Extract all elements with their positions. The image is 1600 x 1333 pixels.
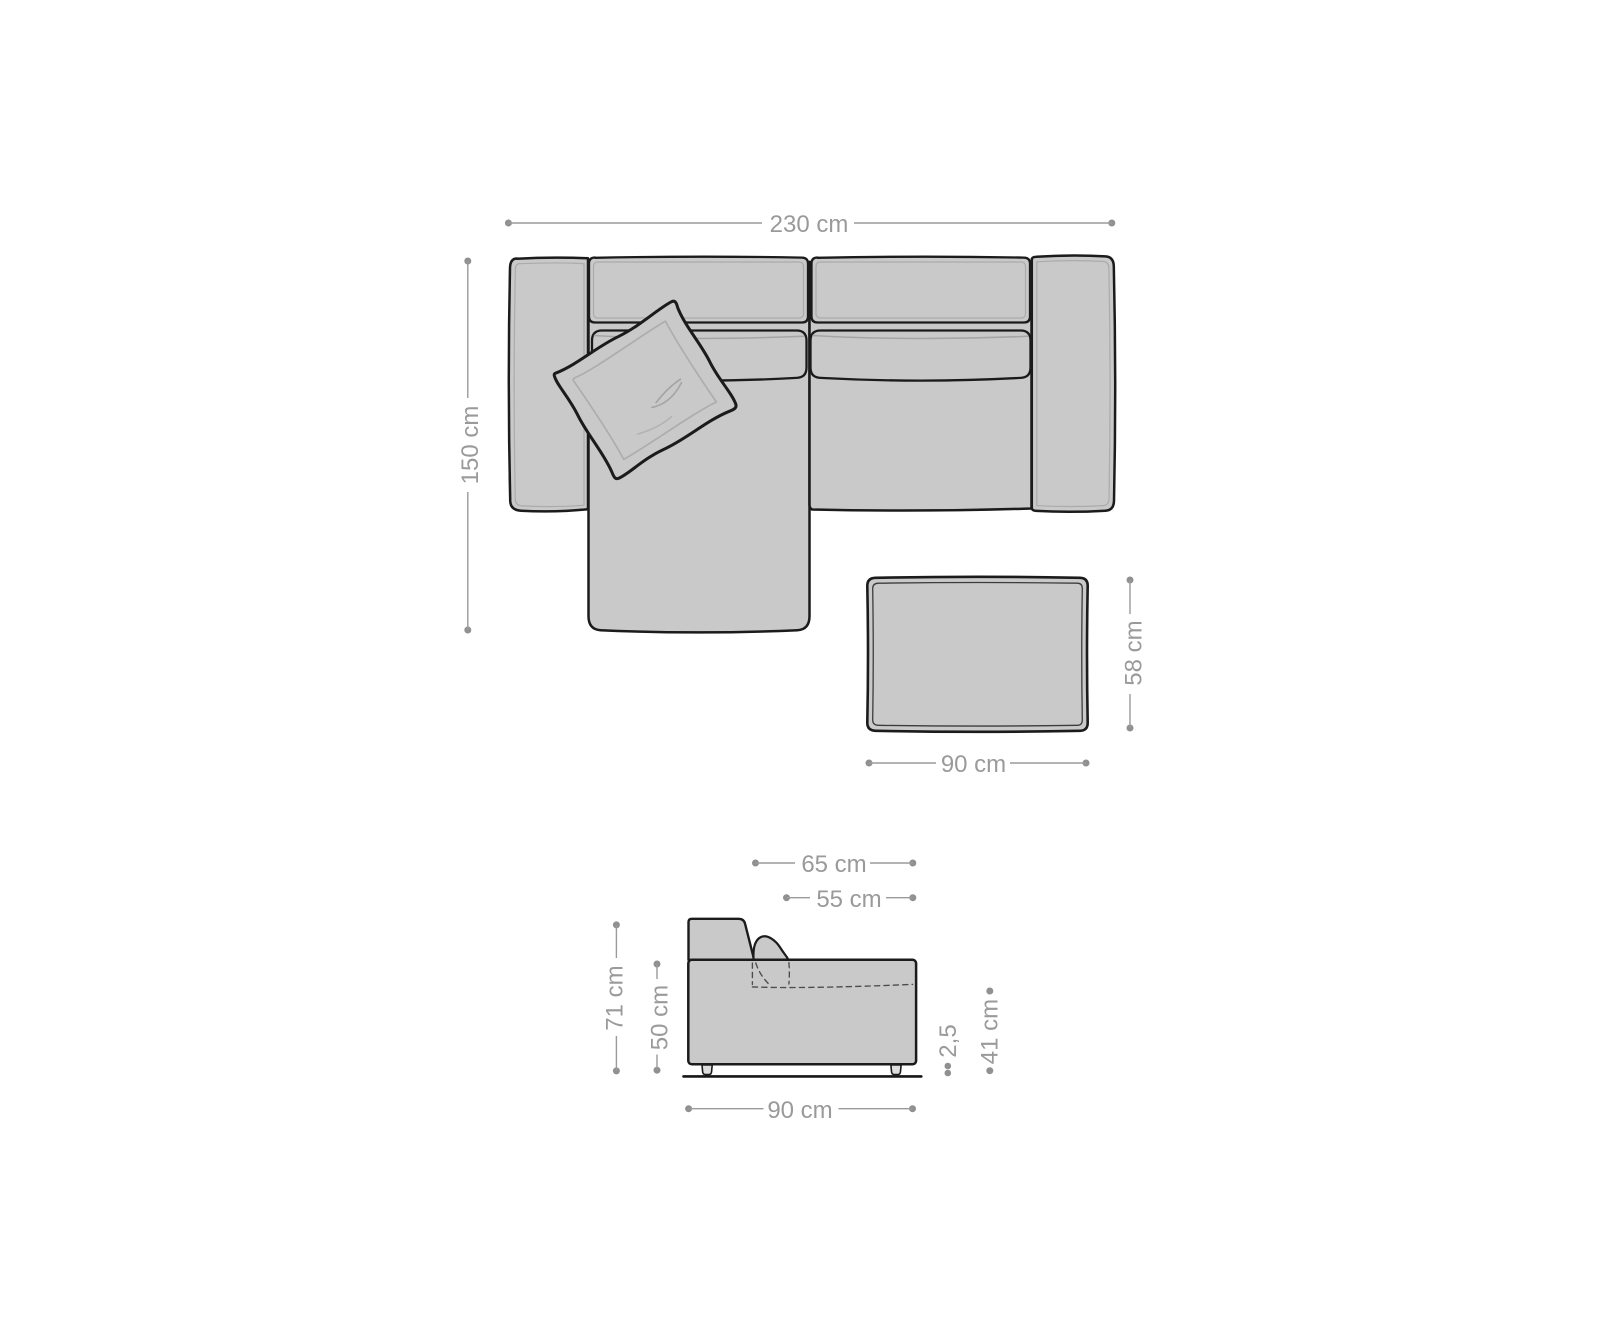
svg-text:55 cm: 55 cm bbox=[816, 886, 881, 913]
svg-text:90 cm: 90 cm bbox=[767, 1097, 832, 1124]
svg-text:41 cm: 41 cm bbox=[977, 999, 1004, 1064]
svg-text:230 cm: 230 cm bbox=[770, 211, 849, 238]
svg-text:58 cm: 58 cm bbox=[1120, 620, 1147, 685]
svg-text:150 cm: 150 cm bbox=[457, 406, 484, 485]
svg-text:71 cm: 71 cm bbox=[602, 965, 629, 1030]
svg-text:2,5: 2,5 bbox=[935, 1024, 962, 1057]
svg-text:65 cm: 65 cm bbox=[801, 851, 866, 878]
svg-text:50 cm: 50 cm bbox=[647, 985, 674, 1050]
svg-text:90 cm: 90 cm bbox=[941, 751, 1006, 778]
